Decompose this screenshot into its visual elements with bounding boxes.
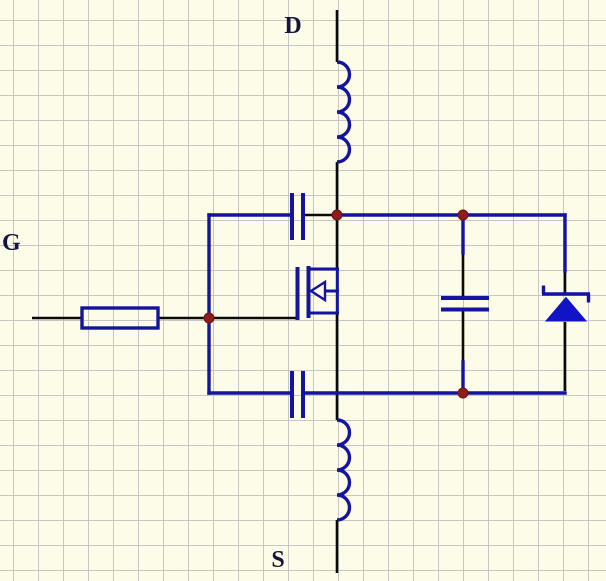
- capacitor-drain-source: [441, 298, 489, 310]
- junction-dot: [458, 388, 468, 398]
- junction-dot: [204, 313, 214, 323]
- circuit-schematic: D G S: [0, 0, 606, 581]
- inductor-top: [337, 62, 350, 162]
- diode-anode-triangle: [546, 298, 586, 322]
- capacitor-gate-drain: [292, 193, 303, 240]
- junction-dot: [332, 210, 342, 220]
- wire-black-segments: [305, 215, 565, 391]
- capacitor-gate-source: [292, 371, 303, 418]
- resistor-gate: [82, 308, 158, 328]
- terminal-label-source: S: [271, 547, 284, 573]
- terminal-label-drain: D: [284, 13, 301, 39]
- inductor-bottom: [337, 420, 350, 520]
- schematic-canvas: D G S: [0, 0, 606, 581]
- junction-dot: [458, 210, 468, 220]
- mosfet: [298, 266, 340, 320]
- mosfet-arrow-icon: [311, 282, 325, 300]
- terminal-label-gate: G: [2, 230, 21, 256]
